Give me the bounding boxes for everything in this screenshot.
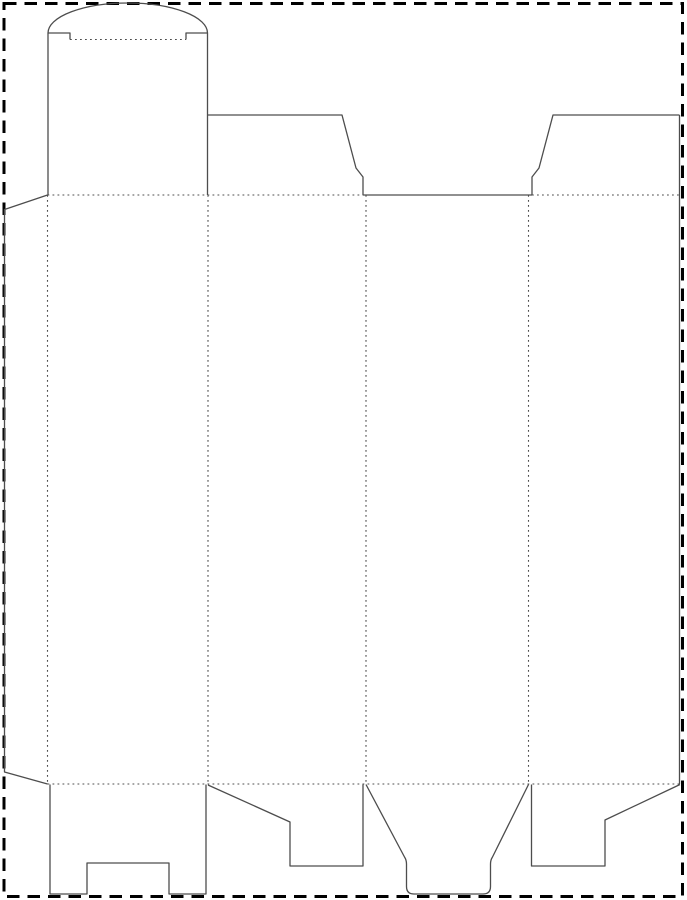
dieline-canvas: [0, 0, 687, 900]
tuck-lid-shoulder-left: [48, 33, 70, 40]
tuck-lid-dome-arc: [48, 3, 208, 33]
top-dust-flap-right: [532, 115, 680, 195]
page-margin-border: [4, 4, 683, 897]
top-dust-flap-left: [208, 115, 364, 195]
tuck-lid-shoulder-right: [186, 33, 208, 40]
bottom-dust-flap-left: [208, 785, 363, 867]
dieline-page: [0, 0, 687, 900]
bottom-flap-panel-1-notched: [50, 785, 206, 895]
bottom-tuck-tongue: [366, 785, 529, 895]
bottom-dust-flap-right: [532, 785, 681, 867]
glue-flap-outline: [5, 195, 48, 784]
